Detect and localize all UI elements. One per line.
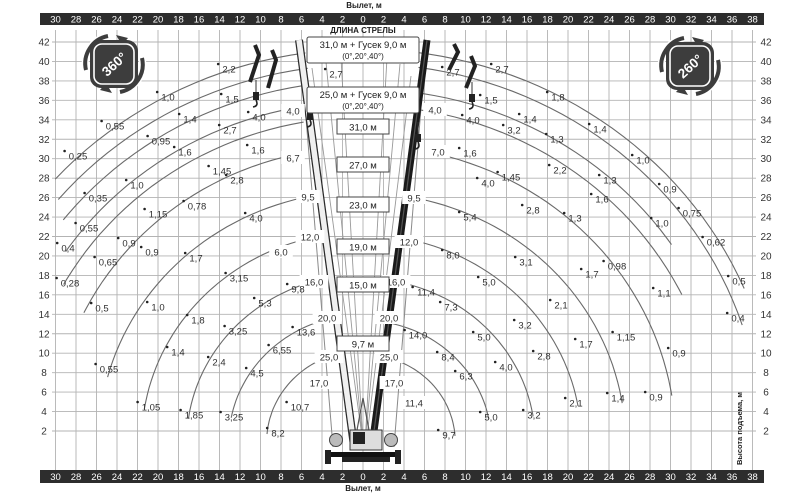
outreach-tick-label: 10 <box>460 472 471 483</box>
load-value-label: 12,0 <box>400 238 419 249</box>
curve-point-dot <box>403 329 406 332</box>
curve-point-dot <box>546 91 549 94</box>
curve-point-dot <box>644 391 647 394</box>
crane-cab <box>353 432 365 444</box>
load-value-label: 0,5 <box>732 277 745 288</box>
load-value-label: 2,2 <box>222 65 235 76</box>
height-tick-label: 32 <box>38 135 50 146</box>
load-value-label: 1,1 <box>657 289 670 300</box>
curve-point-dot <box>677 207 680 210</box>
outreach-tick-label: 26 <box>91 472 102 483</box>
load-value-label: 1,0 <box>161 93 174 104</box>
height-tick-label: 36 <box>760 96 772 107</box>
curve-point-dot <box>90 302 93 305</box>
load-value-label: 9,8 <box>291 285 304 296</box>
load-value-label: 1,45 <box>213 167 232 178</box>
curve-point-dot <box>563 212 566 215</box>
capacity-curve <box>421 93 671 244</box>
curve-point-dot <box>458 211 461 214</box>
outreach-tick-label: 24 <box>112 15 123 26</box>
outreach-tick-label: 32 <box>686 15 697 26</box>
counterweight-icon <box>330 434 343 447</box>
load-value-label: 4,5 <box>250 369 263 380</box>
curve-point-dot <box>476 177 479 180</box>
outreach-tick-label: 14 <box>501 15 512 26</box>
curve-point-dot <box>477 276 480 279</box>
boom-length-label: 23,0 м <box>349 201 377 212</box>
load-value-label: 4,0 <box>249 214 262 225</box>
curve-point-dot <box>701 236 704 239</box>
boom-length-label: 9,7 м <box>352 340 374 351</box>
outreach-tick-label: 20 <box>153 15 164 26</box>
height-tick-label: 28 <box>38 174 50 185</box>
load-value-label: 3,2 <box>518 321 531 332</box>
height-tick-label: 24 <box>760 213 772 224</box>
load-value-label: 1,5 <box>225 95 238 106</box>
outreach-tick-label: 12 <box>481 472 492 483</box>
outreach-tick-label: 26 <box>624 15 635 26</box>
load-value-label: 0,9 <box>122 239 135 250</box>
outreach-tick-label: 6 <box>299 472 304 483</box>
curve-point-dot <box>93 256 96 259</box>
load-value-label: 4,0 <box>499 363 512 374</box>
curve-point-dot <box>55 277 58 280</box>
curve-point-dot <box>472 331 475 334</box>
outreach-tick-label: 24 <box>604 15 615 26</box>
boom-length-label: 27,0 м <box>349 161 377 172</box>
load-value-label: 3,25 <box>225 413 244 424</box>
outreach-tick-label: 14 <box>501 472 512 483</box>
load-value-label: 1,8 <box>551 93 564 104</box>
curve-point-dot <box>179 409 182 412</box>
load-value-label: 17,0 <box>310 379 329 390</box>
curve-point-dot <box>184 252 187 255</box>
curve-point-dot <box>631 154 634 157</box>
height-tick-label: 12 <box>38 329 50 340</box>
outreach-tick-label: 20 <box>563 472 574 483</box>
curve-point-dot <box>436 351 439 354</box>
curve-point-dot <box>100 120 103 123</box>
load-value-label: 5,4 <box>463 213 476 224</box>
outreach-tick-label: 2 <box>340 15 345 26</box>
load-value-label: 1,0 <box>130 181 143 192</box>
load-value-label: 5,0 <box>482 278 495 289</box>
load-value-label: 4,0 <box>481 179 494 190</box>
load-value-label: 2,7 <box>446 68 459 79</box>
outreach-tick-label: 36 <box>727 472 738 483</box>
height-tick-label: 34 <box>38 115 50 126</box>
curve-point-dot <box>521 204 524 207</box>
curve-point-dot <box>667 347 670 350</box>
outreach-tick-label: 24 <box>112 472 123 483</box>
jib-config-line1: 31,0 м + Гусек 9,0 м <box>320 40 407 51</box>
curve-point-dot <box>590 193 593 196</box>
load-value-label: 6,0 <box>274 248 287 259</box>
outreach-tick-label: 6 <box>422 15 427 26</box>
load-value-label: 4,0 <box>252 113 265 124</box>
load-value-label: 0,4 <box>731 314 744 325</box>
curve-point-dot <box>146 301 149 304</box>
height-tick-label: 16 <box>38 290 50 301</box>
load-value-label: 0,55 <box>80 224 99 235</box>
curve-point-dot <box>411 286 414 289</box>
hook-block-icon <box>415 134 421 142</box>
curve-point-dot <box>479 411 482 414</box>
outreach-tick-label: 28 <box>71 472 82 483</box>
curve-point-dot <box>136 401 139 404</box>
load-value-label: 11,4 <box>405 399 423 410</box>
curve-point-dot <box>223 325 226 328</box>
outreach-tick-label: 8 <box>442 15 447 26</box>
height-tick-label: 6 <box>763 388 769 399</box>
load-value-label: 7,0 <box>431 148 444 159</box>
curve-point-dot <box>225 174 228 177</box>
curve-point-dot <box>532 350 535 353</box>
outreach-tick-label: 20 <box>563 15 574 26</box>
outreach-tick-label: 30 <box>50 15 61 26</box>
outreach-tick-label: 22 <box>132 15 143 26</box>
curve-point-dot <box>496 171 499 174</box>
height-tick-label: 4 <box>41 407 47 418</box>
height-tick-label: 14 <box>38 310 50 321</box>
height-tick-label: 28 <box>760 174 772 185</box>
curve-point-dot <box>244 212 247 215</box>
load-value-label: 5,0 <box>484 413 497 424</box>
height-tick-label: 2 <box>763 427 769 438</box>
load-value-label: 6,55 <box>273 346 292 357</box>
height-tick-label: 18 <box>38 271 50 282</box>
load-value-label: 13,6 <box>297 328 316 339</box>
outreach-tick-label: 2 <box>340 472 345 483</box>
height-tick-label: 40 <box>760 57 772 68</box>
load-value-label: 12,0 <box>301 233 320 244</box>
load-value-label: 7,3 <box>444 303 457 314</box>
outreach-tick-label: 36 <box>727 15 738 26</box>
boom-length-label: 15,0 м <box>349 281 377 292</box>
height-tick-label: 34 <box>760 115 772 126</box>
load-value-label: 1,6 <box>251 146 264 157</box>
outreach-tick-label: 26 <box>91 15 102 26</box>
outreach-tick-label: 4 <box>401 472 406 483</box>
outreach-tick-label: 18 <box>173 15 184 26</box>
load-value-label: 9,7 <box>442 431 455 442</box>
height-tick-label: 22 <box>760 232 772 243</box>
outrigger-beam <box>328 452 398 457</box>
curve-point-dot <box>246 144 249 147</box>
height-tick-label: 32 <box>760 135 772 146</box>
load-value-label: 1,4 <box>523 115 536 126</box>
outreach-tick-label: 22 <box>583 472 594 483</box>
load-value-label: 0,75 <box>683 209 702 220</box>
curve-point-dot <box>218 124 221 127</box>
load-value-label: 0,98 <box>608 262 627 273</box>
jib-config-line1: 25,0 м + Гусек 9,0 м <box>320 90 407 101</box>
load-value-label: 5,0 <box>477 333 490 344</box>
load-value-label: 4,0 <box>428 106 441 117</box>
curve-point-dot <box>56 242 59 245</box>
load-value-label: 1,6 <box>178 148 191 159</box>
height-tick-label: 24 <box>38 213 50 224</box>
curve-point-dot <box>494 361 497 364</box>
jib-config-line2: (0°,20°,40°) <box>342 102 384 111</box>
load-value-label: 1,0 <box>636 156 649 167</box>
outreach-tick-label: 28 <box>71 15 82 26</box>
load-value-label: 0,35 <box>89 194 108 205</box>
height-tick-label: 30 <box>38 154 50 165</box>
load-value-label: 6,7 <box>286 154 299 165</box>
curve-point-dot <box>247 111 250 114</box>
load-value-label: 0,78 <box>188 202 207 213</box>
load-value-label: 1,7 <box>585 270 598 281</box>
curve-point-dot <box>285 401 288 404</box>
capacity-curve <box>66 106 307 252</box>
height-tick-label: 20 <box>760 251 772 262</box>
load-value-label: 2,2 <box>553 166 566 177</box>
curve-point-dot <box>217 63 220 66</box>
load-value-label: 2,7 <box>329 70 342 81</box>
curve-point-dot <box>513 319 516 322</box>
load-value-label: 1,3 <box>568 214 581 225</box>
curve-point-dot <box>140 246 143 249</box>
outreach-tick-label: 24 <box>604 472 615 483</box>
curve-point-dot <box>658 183 661 186</box>
curve-point-dot <box>220 93 223 96</box>
outreach-tick-label: 22 <box>132 472 143 483</box>
load-value-label: 0,9 <box>663 185 676 196</box>
curve-point-dot <box>186 314 189 317</box>
load-value-label: 0,55 <box>100 365 119 376</box>
height-tick-label: 8 <box>41 368 47 379</box>
load-value-label: 2,1 <box>554 301 567 312</box>
height-tick-label: 26 <box>38 193 50 204</box>
curve-point-dot <box>173 146 176 149</box>
bottom-outreach-axis-title: Вылет, м <box>340 484 386 493</box>
curve-point-dot <box>439 301 442 304</box>
outreach-tick-label: 0 <box>360 15 365 26</box>
load-value-label: 0,9 <box>649 393 662 404</box>
outreach-tick-label: 8 <box>278 472 283 483</box>
load-value-label: 3,1 <box>519 258 532 269</box>
chart-canvas: 2,22,71,01,51,44,04,00,552,70,951,61,60,… <box>0 0 800 501</box>
load-value-label: 0,28 <box>61 279 80 290</box>
height-tick-label: 30 <box>760 154 772 165</box>
outreach-tick-label: 32 <box>686 472 697 483</box>
curve-point-dot <box>63 150 66 153</box>
outreach-tick-label: 28 <box>645 15 656 26</box>
load-value-label: 2,8 <box>526 206 539 217</box>
curve-point-dot <box>156 91 159 94</box>
load-value-label: 1,4 <box>183 115 196 126</box>
outreach-tick-label: 2 <box>381 15 386 26</box>
load-value-label: 2,8 <box>230 176 243 187</box>
curve-point-dot <box>166 346 169 349</box>
load-value-label: 0,25 <box>69 152 88 163</box>
outreach-tick-label: 6 <box>299 15 304 26</box>
curve-point-dot <box>490 63 493 66</box>
load-value-label: 0,55 <box>106 122 125 133</box>
load-value-label: 8,4 <box>441 353 454 364</box>
load-value-label: 0,9 <box>145 248 158 259</box>
load-value-label: 0,65 <box>99 258 118 269</box>
curve-point-dot <box>182 200 185 203</box>
outrigger-pad <box>395 450 401 464</box>
height-tick-label: 42 <box>38 38 50 49</box>
curve-point-dot <box>588 123 591 126</box>
curve-point-dot <box>727 275 730 278</box>
outreach-tick-label: 10 <box>460 15 471 26</box>
load-value-label: 1,15 <box>617 333 636 344</box>
curve-point-dot <box>611 331 614 334</box>
load-value-label: 1,3 <box>603 176 616 187</box>
outreach-tick-label: 38 <box>747 15 758 26</box>
height-tick-label: 20 <box>38 251 50 262</box>
capacity-curve <box>144 237 313 409</box>
top-outreach-axis-title: Вылет, м <box>341 1 387 10</box>
curve-point-dot <box>518 113 521 116</box>
curve-point-dot <box>94 363 97 366</box>
load-value-label: 2,7 <box>495 65 508 76</box>
load-value-label: 5,3 <box>258 299 271 310</box>
counterweight-icon <box>385 434 398 447</box>
outreach-tick-label: 30 <box>665 472 676 483</box>
load-value-label: 17,0 <box>385 379 404 390</box>
outreach-tick-label: 10 <box>255 472 266 483</box>
jib-icon <box>268 50 276 88</box>
capacity-curve <box>405 239 578 406</box>
load-value-label: 1,6 <box>463 149 476 160</box>
outreach-tick-label: 38 <box>747 472 758 483</box>
outreach-tick-label: 8 <box>442 472 447 483</box>
curve-point-dot <box>548 164 551 167</box>
height-tick-label: 16 <box>760 290 772 301</box>
height-tick-label: 10 <box>38 349 50 360</box>
curve-point-dot <box>324 68 327 71</box>
curve-point-dot <box>441 66 444 69</box>
curve-point-dot <box>502 124 505 127</box>
curve-point-dot <box>267 344 270 347</box>
boom-legend-title: ДЛИНА СТРЕЛЫ <box>330 26 396 35</box>
outreach-tick-label: 30 <box>50 472 61 483</box>
load-value-label: 1,3 <box>550 135 563 146</box>
hook-block-icon <box>253 92 259 100</box>
height-tick-label: 18 <box>760 271 772 282</box>
outreach-tick-label: 4 <box>319 15 324 26</box>
outreach-tick-label: 16 <box>194 15 205 26</box>
curve-point-dot <box>598 174 601 177</box>
outreach-tick-label: 26 <box>624 472 635 483</box>
outreach-tick-label: 12 <box>235 472 246 483</box>
height-tick-label: 36 <box>38 96 50 107</box>
curve-point-dot <box>652 287 655 290</box>
curve-point-dot <box>650 217 653 220</box>
load-value-label: 4,0 <box>466 116 479 127</box>
load-value-label: 2,1 <box>569 399 582 410</box>
outreach-tick-label: 16 <box>522 15 533 26</box>
height-tick-label: 4 <box>763 407 769 418</box>
load-value-label: 1,4 <box>593 125 606 136</box>
curve-point-dot <box>514 256 517 259</box>
load-value-label: 3,15 <box>230 274 249 285</box>
load-value-label: 6,3 <box>459 372 472 383</box>
load-value-label: 20,0 <box>380 314 399 325</box>
outreach-tick-label: 14 <box>214 472 225 483</box>
curve-point-dot <box>522 409 525 412</box>
height-tick-label: 40 <box>38 57 50 68</box>
load-value-label: 2,8 <box>537 352 550 363</box>
load-value-label: 1,0 <box>151 303 164 314</box>
outreach-tick-label: 6 <box>422 472 427 483</box>
outreach-tick-label: 2 <box>381 472 386 483</box>
curve-point-dot <box>143 208 146 211</box>
load-value-label: 1,7 <box>189 254 202 265</box>
capacity-curve <box>188 280 317 418</box>
curve-point-dot <box>479 94 482 97</box>
curve-point-dot <box>602 260 605 263</box>
crane-load-diagram: Вылет, м 2,22,71,01,51,44,04,00,552,70,9… <box>0 0 800 501</box>
curve-point-dot <box>726 312 729 315</box>
height-axis-title: Высота подъема, м <box>735 388 746 470</box>
curve-point-dot <box>74 222 77 225</box>
outreach-tick-label: 12 <box>481 15 492 26</box>
outreach-tick-label: 22 <box>583 15 594 26</box>
load-value-label: 8,0 <box>446 251 459 262</box>
load-value-label: 16,0 <box>305 278 324 289</box>
curve-point-dot <box>574 338 577 341</box>
load-value-label: 1,6 <box>595 195 608 206</box>
height-tick-label: 8 <box>763 368 769 379</box>
load-value-label: 1,45 <box>502 173 521 184</box>
height-tick-label: 38 <box>38 76 50 87</box>
load-value-label: 1,0 <box>655 219 668 230</box>
curve-point-dot <box>245 367 248 370</box>
boom-length-label: 31,0 м <box>349 123 377 134</box>
curve-point-dot <box>117 237 120 240</box>
load-value-label: 1,8 <box>191 316 204 327</box>
load-value-label: 20,0 <box>318 314 337 325</box>
height-tick-label: 42 <box>760 38 772 49</box>
load-value-label: 1,4 <box>611 394 624 405</box>
rotation-badge-left: 360° <box>85 35 143 93</box>
height-tick-label: 10 <box>760 349 772 360</box>
capacity-curve <box>409 197 623 403</box>
load-value-label: 11,4 <box>417 288 435 299</box>
curve-point-dot <box>207 356 210 359</box>
height-tick-label: 22 <box>38 232 50 243</box>
curve-point-dot <box>549 299 552 302</box>
curve-point-dot <box>219 411 222 414</box>
curve-point-dot <box>461 114 464 117</box>
jib-config-line2: (0°,20°,40°) <box>342 52 384 61</box>
outreach-tick-label: 16 <box>522 472 533 483</box>
outreach-tick-label: 28 <box>645 472 656 483</box>
load-value-label: 4,0 <box>286 107 299 118</box>
load-value-label: 10,7 <box>291 403 310 414</box>
height-tick-label: 12 <box>760 329 772 340</box>
height-tick-label: 38 <box>760 76 772 87</box>
outreach-tick-label: 14 <box>214 15 225 26</box>
curve-point-dot <box>441 249 444 252</box>
outreach-tick-label: 18 <box>173 472 184 483</box>
load-value-label: 2,4 <box>212 358 225 369</box>
curve-point-dot <box>224 272 227 275</box>
curve-point-dot <box>454 370 457 373</box>
jib-icon <box>466 56 475 88</box>
load-value-label: 9,5 <box>407 194 420 205</box>
curve-point-dot <box>146 135 149 138</box>
outreach-tick-label: 0 <box>360 472 365 483</box>
outreach-tick-label: 8 <box>278 15 283 26</box>
outreach-tick-label: 12 <box>235 15 246 26</box>
